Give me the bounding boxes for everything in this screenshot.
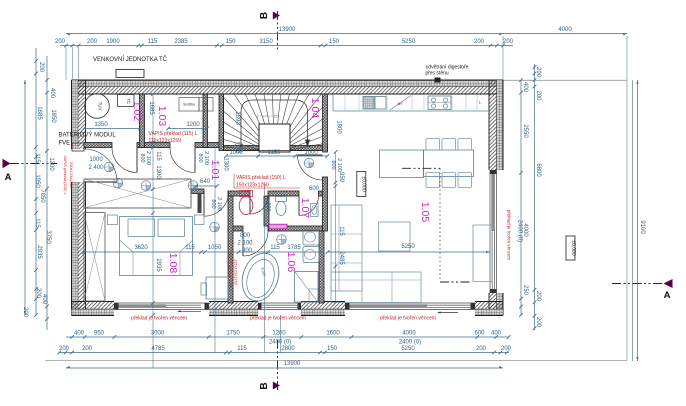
svg-text:150: 150 <box>329 39 340 45</box>
svg-text:B: B <box>259 12 270 19</box>
svg-text:115: 115 <box>148 39 158 45</box>
svg-text:š = 177 v = 250: š = 177 v = 250 <box>257 115 279 119</box>
svg-text:800: 800 <box>139 153 145 162</box>
svg-text:200x123x1500: 200x123x1500 <box>69 162 74 189</box>
svg-text:7850: 7850 <box>39 189 45 203</box>
svg-text:1850: 1850 <box>50 109 56 123</box>
svg-text:200: 200 <box>35 288 41 299</box>
svg-text:překlad je tvořen věncem: překlad je tvořen věncem <box>507 210 512 261</box>
svg-text:Sušička: Sušička <box>183 103 195 107</box>
svg-text:1150: 1150 <box>268 150 282 156</box>
svg-text:2400 (0): 2400 (0) <box>399 340 421 346</box>
svg-text:1785: 1785 <box>287 245 301 251</box>
svg-text:800: 800 <box>210 199 216 208</box>
svg-text:250: 250 <box>522 285 528 296</box>
svg-text:200: 200 <box>535 317 541 328</box>
svg-text:1000: 1000 <box>229 150 243 156</box>
svg-text:5250: 5250 <box>402 39 416 45</box>
svg-text:400: 400 <box>491 331 502 337</box>
svg-text:1.04: 1.04 <box>309 98 321 119</box>
svg-text:200: 200 <box>87 39 98 45</box>
svg-text:3620: 3620 <box>134 245 148 251</box>
svg-text:L: L <box>479 101 481 105</box>
svg-text:1.01: 1.01 <box>209 160 221 181</box>
svg-text:5250: 5250 <box>401 346 415 352</box>
svg-text:1000: 1000 <box>304 150 318 156</box>
svg-text:115: 115 <box>270 245 280 251</box>
svg-text:200: 200 <box>59 346 70 352</box>
svg-text:A: A <box>664 290 671 301</box>
svg-text:2800: 2800 <box>281 346 295 352</box>
svg-text:MY: MY <box>397 102 403 106</box>
svg-text:B: B <box>259 382 270 389</box>
svg-text:3000: 3000 <box>151 331 165 337</box>
svg-text:1200: 1200 <box>272 331 286 337</box>
svg-text:800: 800 <box>330 160 336 169</box>
svg-text:2 400: 2 400 <box>88 165 104 171</box>
svg-text:950: 950 <box>338 172 344 183</box>
svg-text:VAPIS překlad (115) L: VAPIS překlad (115) L <box>149 131 198 137</box>
svg-text:1.03: 1.03 <box>156 106 168 127</box>
svg-text:13900: 13900 <box>284 361 301 367</box>
svg-text:A: A <box>5 172 12 183</box>
svg-text:200: 200 <box>501 346 512 352</box>
svg-text:800: 800 <box>265 202 271 211</box>
svg-text:150: 150 <box>225 39 236 45</box>
svg-text:200: 200 <box>503 39 514 45</box>
svg-text:1.08: 1.08 <box>167 253 179 274</box>
svg-text:BATERIOVÝ MODUL: BATERIOVÝ MODUL <box>59 132 117 139</box>
svg-text:2385: 2385 <box>174 39 188 45</box>
svg-text:600: 600 <box>474 331 485 337</box>
svg-text:TUV: TUV <box>98 102 103 111</box>
svg-text:P: P <box>205 103 208 107</box>
svg-text:950: 950 <box>94 331 105 337</box>
svg-text:1800: 1800 <box>336 120 342 134</box>
svg-text:200: 200 <box>476 346 487 352</box>
svg-text:1685: 1685 <box>36 106 42 120</box>
svg-text:2400 (0): 2400 (0) <box>517 220 523 242</box>
svg-text:1950: 1950 <box>34 174 40 188</box>
svg-text:115x123x1259: 115x123x1259 <box>149 138 182 144</box>
svg-text:VENKOVNÍ JEDNOTKA TČ: VENKOVNÍ JEDNOTKA TČ <box>93 56 168 63</box>
svg-text:115: 115 <box>338 226 344 236</box>
svg-text:1600: 1600 <box>326 331 340 337</box>
svg-text:400: 400 <box>49 88 55 99</box>
svg-text:4000: 4000 <box>558 27 572 33</box>
svg-text:800: 800 <box>242 248 253 254</box>
svg-text:1350: 1350 <box>94 122 108 128</box>
svg-text:600: 600 <box>309 186 320 192</box>
svg-text:115: 115 <box>34 153 40 163</box>
svg-text:1000: 1000 <box>89 157 103 163</box>
svg-text:150: 150 <box>327 346 338 352</box>
svg-text:200: 200 <box>474 39 485 45</box>
svg-text:překlad je tvořen věncem: překlad je tvořen věncem <box>250 316 306 322</box>
svg-text:1750: 1750 <box>226 331 240 337</box>
svg-text:3150: 3150 <box>259 39 273 45</box>
svg-text:200: 200 <box>535 67 541 78</box>
svg-text:400: 400 <box>522 82 528 93</box>
svg-text:115x123x1250: 115x123x1250 <box>234 259 239 286</box>
svg-text:přes stěnu: přes stěnu <box>425 71 449 77</box>
svg-text:3750: 3750 <box>45 230 51 244</box>
svg-text:4785: 4785 <box>151 346 165 352</box>
svg-text:2 100: 2 100 <box>216 197 222 211</box>
svg-text:2 100: 2 100 <box>237 241 253 247</box>
svg-text:9100: 9100 <box>639 220 645 234</box>
svg-text:FVE: FVE <box>59 141 71 147</box>
svg-text:TČ: TČ <box>126 98 131 104</box>
svg-text:400: 400 <box>41 294 47 305</box>
svg-text:1890: 1890 <box>234 111 240 125</box>
svg-text:1.07: 1.07 <box>299 198 311 219</box>
svg-text:150x123x1250: 150x123x1250 <box>236 183 269 189</box>
svg-text:±0,000: ±0,000 <box>570 240 576 255</box>
svg-text:200: 200 <box>22 307 28 318</box>
svg-text:VARIS překlad (150) L: VARIS překlad (150) L <box>236 175 286 181</box>
svg-text:1685: 1685 <box>148 101 154 115</box>
svg-text:2 100: 2 100 <box>203 151 209 165</box>
svg-text:2 100: 2 100 <box>336 158 342 172</box>
svg-text:2 100: 2 100 <box>145 151 151 165</box>
svg-text:VAPIS překlad (200) L: VAPIS překlad (200) L <box>63 155 68 195</box>
svg-text:překlad je tvořen věncem: překlad je tvořen věncem <box>131 316 187 322</box>
svg-text:5250: 5250 <box>401 244 415 250</box>
svg-text:2550: 2550 <box>522 124 528 138</box>
svg-text:115: 115 <box>155 151 161 161</box>
svg-text:115: 115 <box>237 346 247 352</box>
svg-text:200: 200 <box>82 346 93 352</box>
svg-text:1900: 1900 <box>106 39 120 45</box>
svg-text:1200: 1200 <box>186 122 200 128</box>
svg-text:800: 800 <box>240 233 251 239</box>
svg-text:115: 115 <box>185 245 195 251</box>
svg-text:1300: 1300 <box>223 157 229 171</box>
svg-text:1200: 1200 <box>48 157 54 171</box>
svg-text:±0,000: ±0,000 <box>361 176 367 191</box>
svg-text:1300: 1300 <box>155 165 161 179</box>
svg-text:13900: 13900 <box>279 27 296 33</box>
svg-text:2400 (0): 2400 (0) <box>269 340 291 346</box>
svg-text:1.02: 1.02 <box>131 101 143 122</box>
svg-text:400: 400 <box>74 331 85 337</box>
svg-text:200: 200 <box>55 39 66 45</box>
svg-text:2485: 2485 <box>338 251 344 265</box>
svg-text:200: 200 <box>535 291 541 302</box>
svg-text:1.05: 1.05 <box>419 202 431 223</box>
svg-text:800: 800 <box>197 153 203 162</box>
svg-text:115: 115 <box>34 218 40 228</box>
svg-text:4000: 4000 <box>402 331 416 337</box>
svg-text:1.06: 1.06 <box>285 252 297 273</box>
svg-text:překlad je tvořen věncem: překlad je tvořen věncem <box>380 316 436 322</box>
svg-text:6800: 6800 <box>535 163 541 177</box>
svg-text:2935: 2935 <box>155 258 161 272</box>
svg-text:2935: 2935 <box>36 245 42 259</box>
svg-text:200: 200 <box>38 62 44 73</box>
svg-text:200: 200 <box>535 90 541 101</box>
svg-text:VAPIS překlad (115) L: VAPIS překlad (115) L <box>228 252 233 292</box>
